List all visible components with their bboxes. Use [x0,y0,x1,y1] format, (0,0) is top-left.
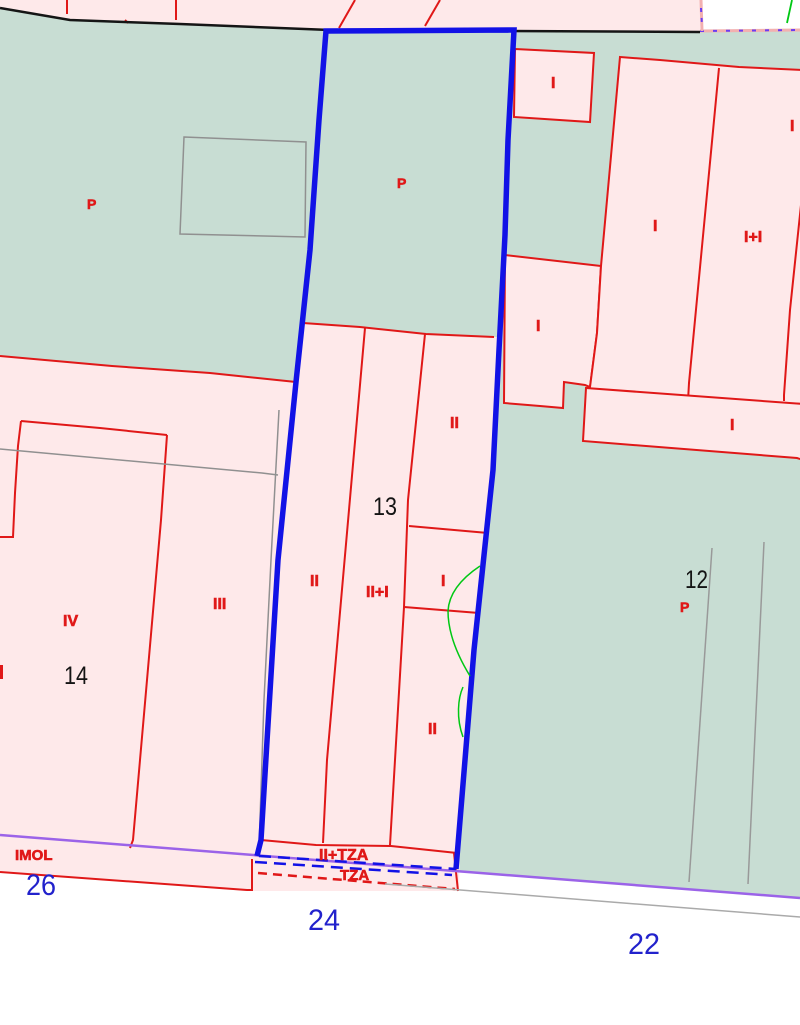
svg-text:I: I [653,218,657,235]
svg-text:III: III [213,596,226,613]
svg-text:13: 13 [373,493,397,521]
svg-text:26: 26 [26,869,56,902]
svg-text:I: I [536,318,540,335]
svg-text:12: 12 [685,566,708,594]
svg-text:14: 14 [64,662,88,690]
svg-text:P: P [397,175,406,191]
svg-text:I: I [790,118,794,135]
svg-text:I: I [441,573,445,590]
svg-text:TZA: TZA [340,867,369,884]
svg-text:IV: IV [63,613,78,630]
svg-text:II: II [450,415,459,432]
svg-text:II: II [310,573,319,590]
svg-text:II+I: II+I [366,584,389,601]
svg-text:I: I [551,75,555,92]
svg-text:II+TZA: II+TZA [319,847,369,864]
svg-text:P: P [87,196,96,212]
svg-text:IMOL: IMOL [15,847,53,864]
svg-text:P: P [680,599,689,615]
svg-text:24: 24 [308,904,340,937]
svg-text:22: 22 [628,928,660,961]
svg-text:I+I: I+I [744,229,762,246]
svg-text:II: II [428,721,437,738]
svg-text:I: I [730,417,734,434]
